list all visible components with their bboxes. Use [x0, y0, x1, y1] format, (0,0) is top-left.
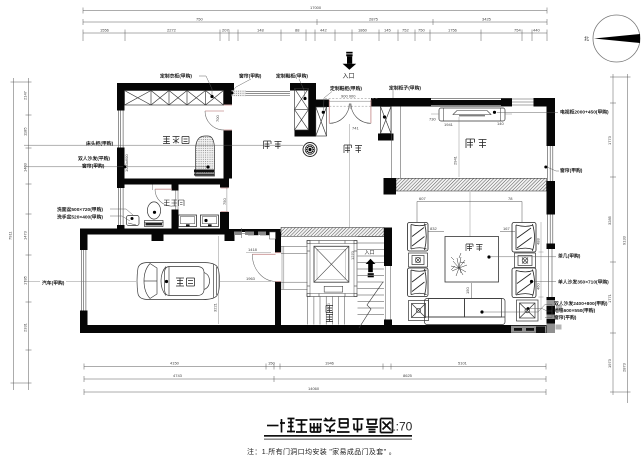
svg-text:汽车(甲购): 汽车(甲购): [42, 280, 65, 287]
svg-text:832: 832: [430, 226, 437, 231]
svg-text:定制衣柜(甲购): 定制衣柜(甲购): [160, 73, 192, 80]
svg-text:741: 741: [352, 126, 359, 131]
svg-text:145: 145: [384, 28, 391, 33]
svg-text:1773: 1773: [607, 135, 612, 145]
svg-text:7911: 7911: [8, 231, 13, 240]
svg-text:定制鞋柜(甲购): 定制鞋柜(甲购): [276, 73, 308, 80]
svg-text:床头柜(甲购): 床头柜(甲购): [86, 140, 114, 147]
svg-text:窗帘(甲购): 窗帘(甲购): [239, 73, 262, 80]
svg-text:442: 442: [320, 28, 327, 33]
svg-text:754: 754: [514, 28, 521, 33]
svg-text:洗面盆500×720(甲购): 洗面盆500×720(甲购): [57, 206, 103, 213]
svg-text:88: 88: [295, 28, 300, 33]
svg-text:3285: 3285: [607, 215, 612, 225]
svg-text:8625: 8625: [403, 373, 413, 378]
svg-text:2941: 2941: [453, 155, 458, 165]
svg-text:2873: 2873: [622, 362, 627, 372]
svg-text:电视柜2000+450(甲购): 电视柜2000+450(甲购): [560, 109, 609, 116]
svg-text:2875: 2875: [369, 17, 379, 22]
svg-text:茶几(甲购): 茶几(甲购): [557, 253, 581, 260]
svg-text:1785: 1785: [23, 275, 28, 285]
svg-text:207: 207: [222, 28, 229, 33]
svg-text:1946: 1946: [325, 361, 335, 366]
svg-text:1473: 1473: [23, 230, 28, 240]
svg-text:洗手盆520×400(甲购): 洗手盆520×400(甲购): [57, 214, 103, 221]
svg-text:1756: 1756: [448, 28, 458, 33]
svg-text:900 900: 900 900: [341, 94, 356, 99]
svg-text:4743: 4743: [173, 373, 183, 378]
svg-text:488: 488: [536, 238, 541, 245]
svg-text:2331: 2331: [23, 322, 28, 332]
svg-text:1556: 1556: [100, 28, 110, 33]
svg-text:752: 752: [402, 28, 409, 33]
svg-text:单人沙发350×710(甲购): 单人沙发350×710(甲购): [558, 279, 609, 286]
svg-text:窗帘(甲购): 窗帘(甲购): [560, 167, 583, 174]
svg-text:地毯600×550(甲购): 地毯600×550(甲购): [554, 307, 596, 314]
svg-text:1771: 1771: [607, 293, 612, 303]
svg-text:17000: 17000: [310, 5, 322, 10]
svg-text:入口: 入口: [343, 73, 355, 80]
svg-text:1270: 1270: [350, 250, 355, 260]
svg-text:607: 607: [419, 196, 426, 201]
svg-text:1:70: 1:70: [389, 420, 413, 434]
svg-text:1000x600: 1000x600: [124, 154, 129, 172]
svg-text:入口: 入口: [365, 250, 375, 256]
svg-text:14060: 14060: [308, 386, 320, 391]
svg-text:窗帘(平购): 窗帘(平购): [554, 314, 577, 321]
svg-text:150: 150: [465, 287, 470, 294]
svg-text:460: 460: [536, 283, 541, 290]
svg-text:1963: 1963: [246, 276, 256, 281]
svg-text:5101: 5101: [458, 361, 468, 366]
svg-text:3425: 3425: [482, 17, 492, 22]
svg-text:700: 700: [215, 115, 220, 122]
svg-text:730: 730: [429, 117, 436, 122]
svg-text:双人沙发2400+800(甲购): 双人沙发2400+800(甲购): [554, 300, 608, 307]
svg-text:750: 750: [196, 17, 203, 22]
svg-text:2147: 2147: [23, 90, 28, 100]
svg-text:150: 150: [268, 361, 275, 366]
svg-text:1860: 1860: [358, 28, 368, 33]
svg-text:1973: 1973: [607, 358, 612, 368]
svg-text:78: 78: [508, 196, 513, 201]
svg-text:窗帘(甲购): 窗帘(甲购): [82, 163, 105, 170]
svg-text:9133: 9133: [622, 235, 627, 245]
svg-text:148: 148: [257, 28, 264, 33]
svg-text:定制鞋柜(甲购): 定制鞋柜(甲购): [330, 85, 362, 92]
svg-text:4150: 4150: [170, 361, 180, 366]
svg-text:167: 167: [503, 226, 510, 231]
svg-text:1403: 1403: [23, 162, 28, 172]
svg-text:750: 750: [418, 28, 425, 33]
svg-text:2600: 2600: [326, 302, 331, 312]
svg-text:750: 750: [222, 198, 227, 205]
svg-text:2272: 2272: [167, 28, 177, 33]
svg-text:440: 440: [533, 28, 540, 33]
svg-text:双人沙发(平购): 双人沙发(平购): [78, 155, 110, 162]
svg-text:3221: 3221: [213, 302, 218, 312]
svg-text:1941: 1941: [444, 122, 454, 127]
svg-text:定制柜子(甲购): 定制柜子(甲购): [389, 85, 421, 92]
svg-text:注：1.所有门洞口均安装 "家易成品门及套" 。: 注：1.所有门洞口均安装 "家易成品门及套" 。: [247, 447, 396, 456]
svg-text:北: 北: [584, 36, 589, 43]
svg-text:1418: 1418: [248, 247, 258, 252]
svg-text:140: 140: [497, 121, 504, 126]
svg-text:1185: 1185: [23, 127, 28, 136]
